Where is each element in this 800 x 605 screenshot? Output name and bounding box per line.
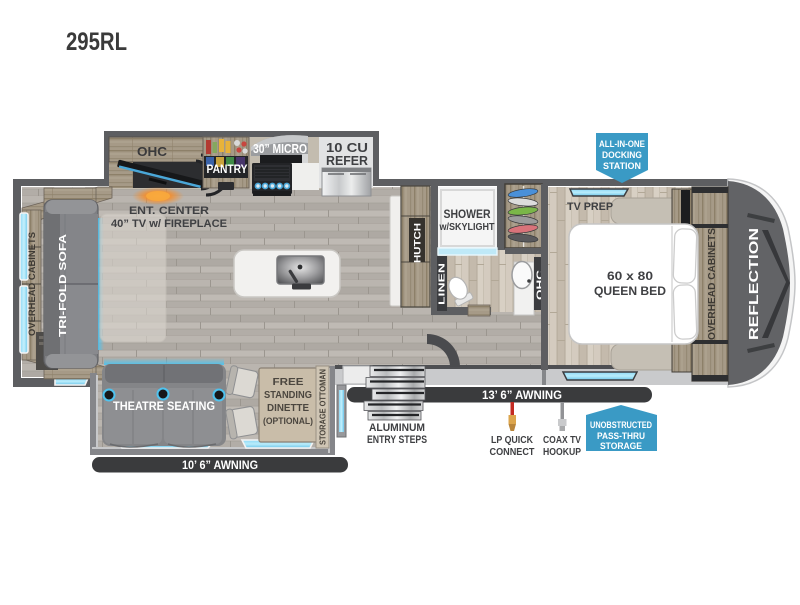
svg-text:QUEEN BED: QUEEN BED [594, 284, 666, 298]
svg-text:THEATRE SEATING: THEATRE SEATING [113, 401, 215, 413]
svg-text:PANTRY: PANTRY [207, 162, 248, 176]
svg-text:ENTRY STEPS: ENTRY STEPS [367, 434, 427, 446]
svg-text:40” TV w/ FIREPLACE: 40” TV w/ FIREPLACE [111, 218, 227, 230]
svg-text:TRI-FOLD SOFA: TRI-FOLD SOFA [57, 233, 69, 337]
svg-text:CONNECT: CONNECT [490, 446, 536, 458]
svg-text:DOCKING: DOCKING [602, 150, 642, 161]
svg-text:ENT. CENTER: ENT. CENTER [129, 205, 209, 217]
svg-text:ALUMINUM: ALUMINUM [369, 422, 425, 434]
svg-text:REFLECTION: REFLECTION [746, 228, 761, 340]
svg-text:LP QUICK: LP QUICK [491, 434, 533, 446]
svg-text:ALL-IN-ONE: ALL-IN-ONE [599, 139, 645, 150]
svg-text:STORAGE OTTOMAN: STORAGE OTTOMAN [319, 369, 328, 445]
svg-text:UNOBSTRUCTED: UNOBSTRUCTED [590, 420, 652, 431]
svg-text:DINETTE: DINETTE [267, 402, 309, 414]
svg-text:10’ 6” AWNING: 10’ 6” AWNING [182, 458, 258, 472]
svg-text:(OPTIONAL): (OPTIONAL) [263, 416, 313, 427]
svg-text:LINEN: LINEN [437, 263, 447, 305]
svg-text:OHC: OHC [137, 144, 168, 159]
svg-text:FREE: FREE [273, 376, 304, 388]
svg-text:REFER: REFER [326, 154, 368, 168]
svg-text:13’ 6” AWNING: 13’ 6” AWNING [482, 388, 562, 402]
svg-text:OVERHEAD CABINETS: OVERHEAD CABINETS [27, 232, 38, 336]
svg-text:OVERHEAD CABINETS: OVERHEAD CABINETS [707, 228, 718, 340]
svg-text:60 x 80: 60 x 80 [607, 269, 653, 283]
svg-text:30” MICRO: 30” MICRO [253, 141, 307, 156]
svg-text:w/SKYLIGHT: w/SKYLIGHT [439, 221, 495, 233]
svg-text:STANDING: STANDING [264, 389, 312, 401]
svg-text:TV PREP: TV PREP [567, 201, 613, 213]
svg-text:HUTCH: HUTCH [413, 223, 424, 263]
svg-text:COAX TV: COAX TV [543, 434, 581, 446]
svg-text:STORAGE: STORAGE [600, 441, 642, 452]
svg-text:SHOWER: SHOWER [444, 209, 492, 221]
svg-text:295RL: 295RL [66, 28, 127, 56]
svg-text:10 CU: 10 CU [326, 141, 368, 155]
svg-text:HOOKUP: HOOKUP [543, 446, 581, 458]
svg-text:STATION: STATION [603, 161, 641, 172]
